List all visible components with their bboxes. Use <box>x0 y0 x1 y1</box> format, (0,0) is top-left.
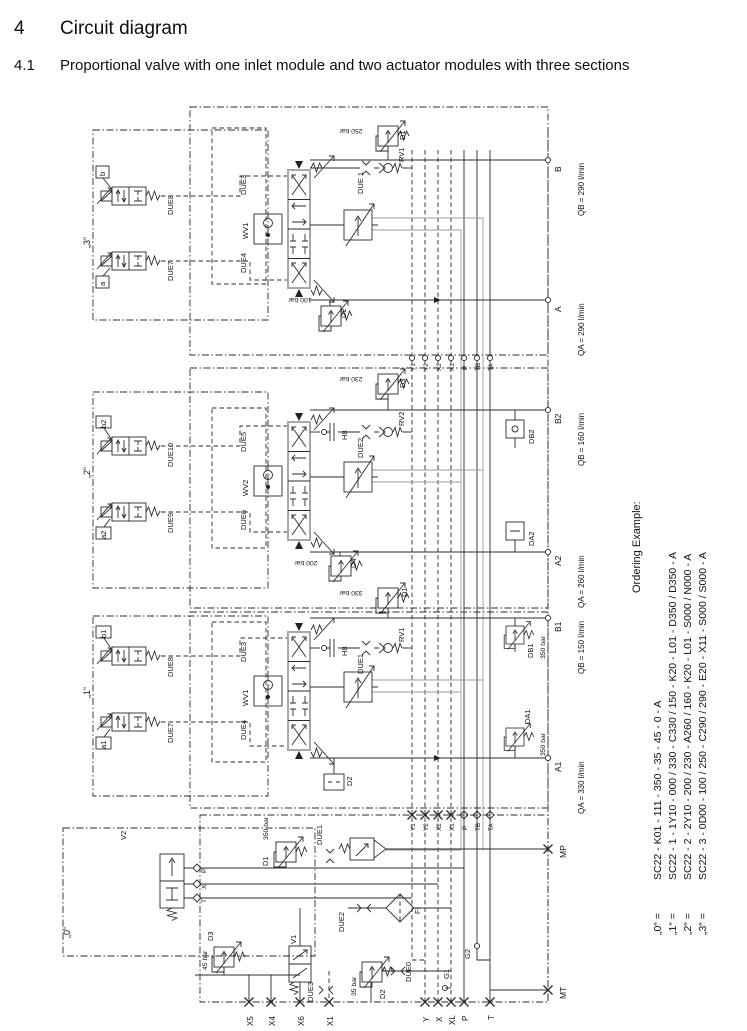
pilot-valve-due10 <box>97 437 160 455</box>
junction-label-ta-2: TA <box>488 823 495 831</box>
s1-rv1-label: RV1 <box>397 628 406 642</box>
junction-label-x1: X1 <box>449 363 456 371</box>
s2-wv2-label: WV2 <box>241 480 250 496</box>
check-valve-rv1-s3 <box>374 163 407 173</box>
pressure-reducing-valve <box>350 838 374 860</box>
s3-pilot-a-label: a <box>98 281 107 286</box>
s2-due2-label: DUE2 <box>356 438 365 458</box>
pilot-valve-due8-s1 <box>97 647 160 665</box>
port-x6-label: X6 <box>297 1016 306 1026</box>
s2-d4-pressure: 200 bar <box>294 559 318 566</box>
s1-d1-pressure: 330 bar <box>339 589 363 596</box>
s1-due4-label: DUE4 <box>239 720 248 740</box>
s3-port-b-flow: QB = 290 l/min <box>577 163 586 216</box>
s0-v2-label: V2 <box>119 831 128 840</box>
port-x1-label: X1 <box>326 1016 335 1026</box>
s3-d2-label: D2 <box>339 308 348 318</box>
s1-due7-label: DUE7 <box>166 723 175 743</box>
port-x5-label: X5 <box>246 1016 255 1026</box>
s2-pilot-a2-label: a2 <box>99 531 108 539</box>
port-mp-label: MP <box>558 845 568 858</box>
s0-p-label: P <box>201 868 208 873</box>
s1-d1-label: D1 <box>400 587 409 597</box>
s3-due4-label: DUE4 <box>239 253 248 273</box>
s3-due1-label: DUE 1 <box>356 172 365 194</box>
section-3-label: „3“ <box>82 237 92 248</box>
s2-d3-label: D3 <box>398 378 407 388</box>
s0-d3-label: D3 <box>206 931 215 941</box>
s2-due5-label: DUE5 <box>239 432 248 452</box>
s2-port-a2: A2 <box>553 555 563 566</box>
s0-due2-label: DUE2 <box>337 912 346 932</box>
ordering-title: Ordering Example: <box>631 501 643 593</box>
junction-label-y1-2: Y1 <box>410 823 417 831</box>
port-y-label: Y <box>422 1016 431 1022</box>
s2-d3-pressure: 230 bar <box>339 375 363 382</box>
pilot-valve-due7 <box>97 252 160 270</box>
s1-port-b1: B1 <box>553 621 563 632</box>
s3-port-b: B <box>553 166 563 172</box>
section-3-module: „3“ b DUE8 a DUE7 DUE3 WV1 DUE4 DUE 1 RV… <box>82 121 586 356</box>
pilot-valve-due7-s1 <box>97 713 160 731</box>
s1-port-a1: A1 <box>553 761 563 772</box>
s3-due3-label: DUE3 <box>239 175 248 195</box>
main-spool-valve-s1 <box>288 618 334 764</box>
main-spool-valve-s3 <box>288 156 334 302</box>
s3-wv1-label: WV1 <box>241 223 250 239</box>
s0-due0-label: DUE0 <box>404 962 413 982</box>
bottom-ports: X5 X4 X6 X1 Y X XL P T <box>245 971 497 1026</box>
s1-wv1-label: WV1 <box>241 690 250 706</box>
section-0-label: „0“ <box>62 927 72 938</box>
check-valve-rv1-s1 <box>374 643 407 653</box>
s2-rv2-label: RV2 <box>397 412 406 426</box>
s2-pilot-b2-label: b2 <box>99 420 108 428</box>
s0-d1-label: D1 <box>261 856 270 866</box>
junction-label-y2: Y2 <box>423 363 430 371</box>
s3-port-a: A <box>553 306 563 312</box>
s0-d3-pressure: 45 bar <box>202 950 209 970</box>
s3-d1-label: D1 <box>398 130 407 140</box>
s3-rv1-label: RV1 <box>397 148 406 162</box>
port-mt-label: MT <box>558 987 568 999</box>
s3-d1-pressure: 250 bar <box>339 127 363 134</box>
port-p-label: P <box>461 1016 470 1021</box>
s1-port-b1-flow: QB = 150 l/min <box>577 621 586 674</box>
ordering-value-1: SC22 - 1 - 1Y10 - 000 / 330 - C330 / 150… <box>667 552 679 880</box>
ordering-example: Ordering Example: „0“ = SC22 - K01 - 111… <box>631 501 709 935</box>
s2-db2-label: DB2 <box>527 429 536 444</box>
section-2-label: „2“ <box>82 467 92 478</box>
junction-label-p-2: P <box>462 826 469 830</box>
pilot-valve-due8 <box>97 187 160 205</box>
junction-label-x1-2: X1 <box>449 823 456 831</box>
main-spool-valve-s2 <box>288 408 334 554</box>
circuit-diagram: Y1 Y2 X2 X1 P TB TA Y1 Y2 X2 X1 P TB TA … <box>0 0 747 1031</box>
s0-d2-label: D2 <box>378 989 387 999</box>
plug-d2-s1 <box>324 774 344 790</box>
relief-valve-da1 <box>504 724 534 752</box>
s2-port-a2-flow: QA = 260 l/min <box>577 555 586 608</box>
s3-d2-pressure: 100 bar <box>288 296 312 303</box>
ordering-value-3: SC22 - 3 - 0D00 - 100 / 250 - C290 / 290… <box>697 552 709 880</box>
s1-pilot-b1-label: b1 <box>99 630 108 638</box>
s1-da1-pressure: 350 bar <box>540 732 547 756</box>
s2-d4-label: D4 <box>349 558 358 568</box>
s0-due3-label: DUE3 <box>306 982 315 1002</box>
ordering-key-2: „2“ = <box>682 913 694 935</box>
relief-valve-d2-inlet <box>360 957 393 988</box>
relief-valve-d3-inlet <box>212 942 245 973</box>
inlet-module: „0“ V2 P X T 350 bar D1 DUE1 MP FI <box>62 816 568 1002</box>
port-x-label: X <box>435 1016 444 1022</box>
junction-label-y1: Y1 <box>410 363 417 371</box>
s0-g2-label: G2 <box>463 949 472 959</box>
document-page: 4Circuit diagram 4.1Proportional valve w… <box>0 0 747 1031</box>
s3-pilot-b-label: b <box>98 172 107 176</box>
ordering-key-1: „1“ = <box>667 913 679 935</box>
ordering-value-0: SC22 - K01 - 111 - 350 - 35 - 45 - 0 - A <box>652 701 664 880</box>
port-xl-label: XL <box>448 1015 457 1025</box>
junction-label-tb-2: TB <box>475 823 482 831</box>
port-x4-label: X4 <box>268 1016 277 1026</box>
section-interface-row-upper: Y1 Y2 X2 X1 P TB TA <box>409 355 495 371</box>
check-cartridge-db2 <box>506 420 524 438</box>
s0-d1-pressure: 350 bar <box>263 816 270 840</box>
s0-x-label: X <box>201 884 208 889</box>
junction-label-x2-2: X2 <box>436 823 443 831</box>
s3-due8-label: DUE8 <box>166 195 175 215</box>
junction-label-p: P <box>462 366 469 370</box>
s2-da2-label: DA2 <box>527 531 536 546</box>
junction-label-y2-2: Y2 <box>423 823 430 831</box>
s2-port-b2-flow: QB = 160 l/min <box>577 413 586 466</box>
junction-label-ta: TA <box>488 363 495 371</box>
s3-due7-label: DUE7 <box>166 261 175 281</box>
s0-g1-label: G1 <box>442 969 451 979</box>
accumulator-h8-s1 <box>321 639 334 657</box>
ordering-key-0: „0“ = <box>652 913 664 935</box>
s1-due1-label: DUE1 <box>356 654 365 674</box>
s2-due9-label: DUE9 <box>166 513 175 533</box>
s1-da1-label: DA1 <box>523 709 532 724</box>
s0-v1-label: V1 <box>289 935 298 944</box>
check-valve-rv2 <box>374 427 407 437</box>
s1-db1-pressure: 350 bar <box>540 635 547 659</box>
junction-label-x2: X2 <box>436 363 443 371</box>
port-t-label: T <box>487 1015 496 1020</box>
s3-port-a-flow: QA = 290 l/min <box>577 303 586 356</box>
pilot-valve-due9 <box>97 503 160 521</box>
s1-due8-label: DUE8 <box>166 657 175 677</box>
s1-port-a1-flow: QA = 330 l/min <box>577 761 586 814</box>
s1-pilot-a1-label: a1 <box>99 741 108 749</box>
s2-due6-label: DUE6 <box>239 510 248 530</box>
junction-label-tb: TB <box>475 363 482 371</box>
accumulator-h8-s2 <box>321 423 334 441</box>
pilot-and-pressure-bus-lines <box>372 150 490 1002</box>
s1-due3-label: DUE3 <box>239 642 248 662</box>
s0-t-label: T <box>201 899 208 903</box>
ordering-key-3: „3“ = <box>697 913 709 935</box>
s1-db1-label: DB1 <box>526 643 535 658</box>
ordering-value-2: SC22 - 2 - 2Y10 - 200 / 230 - A260 / 160… <box>682 554 694 880</box>
section-1-label: „1“ <box>82 687 92 698</box>
s2-port-b2: B2 <box>553 413 563 424</box>
section-1-module: „1“ b1 DUE8 a1 DUE7 DUE3 WV1 DUE4 H8 <box>82 583 586 814</box>
s0-due1-label: DUE1 <box>315 825 324 845</box>
s0-d2-pressure: 35 bar <box>351 976 358 996</box>
s1-d2-label: D2 <box>345 776 354 786</box>
section-2-module: „2“ b2 DUE10 a2 DUE9 DUE5 WV2 DUE6 H8 <box>82 369 586 608</box>
relief-valve-d1-inlet <box>274 837 307 868</box>
